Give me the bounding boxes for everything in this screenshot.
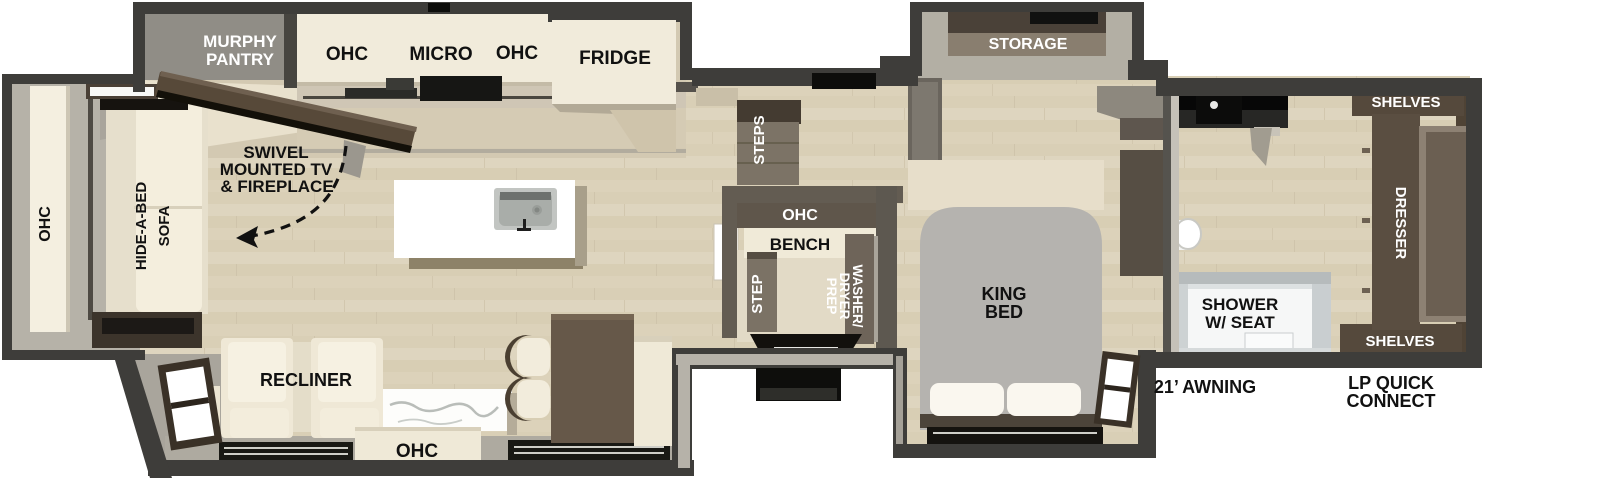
svg-text:SHELVES: SHELVES (1366, 333, 1435, 350)
svg-text:FRIDGE: FRIDGE (579, 48, 651, 69)
svg-text:RECLINER: RECLINER (260, 370, 352, 390)
svg-text:STORAGE: STORAGE (989, 36, 1068, 53)
svg-text:BED: BED (985, 302, 1023, 322)
svg-text:SHELVES: SHELVES (1372, 94, 1441, 111)
svg-text:KING: KING (982, 284, 1027, 304)
svg-text:DRESSER: DRESSER (1392, 187, 1409, 260)
svg-text:21’ AWNING: 21’ AWNING (1154, 377, 1256, 397)
svg-text:OHC: OHC (37, 206, 54, 242)
svg-text:OHC: OHC (496, 43, 539, 64)
svg-text:STEP: STEP (749, 274, 766, 313)
svg-text:OHC: OHC (782, 207, 818, 224)
svg-text:OHC: OHC (396, 441, 439, 462)
svg-text:MURPHY: MURPHY (203, 32, 277, 51)
svg-text:CONNECT: CONNECT (1347, 391, 1436, 411)
svg-text:SHOWER: SHOWER (1202, 295, 1279, 314)
svg-text:BENCH: BENCH (770, 235, 830, 254)
svg-text:HIDE-A-BED: HIDE-A-BED (133, 182, 150, 270)
svg-text:STEPS: STEPS (751, 115, 768, 164)
svg-text:& FIREPLACE: & FIREPLACE (220, 177, 333, 196)
svg-text:MICRO: MICRO (409, 44, 472, 65)
svg-text:OHC: OHC (326, 44, 369, 65)
svg-text:PREP: PREP (824, 278, 839, 315)
svg-text:W/ SEAT: W/ SEAT (1205, 313, 1275, 332)
svg-text:SOFA: SOFA (156, 205, 173, 246)
svg-text:LP QUICK: LP QUICK (1348, 373, 1434, 393)
svg-text:PANTRY: PANTRY (206, 50, 275, 69)
